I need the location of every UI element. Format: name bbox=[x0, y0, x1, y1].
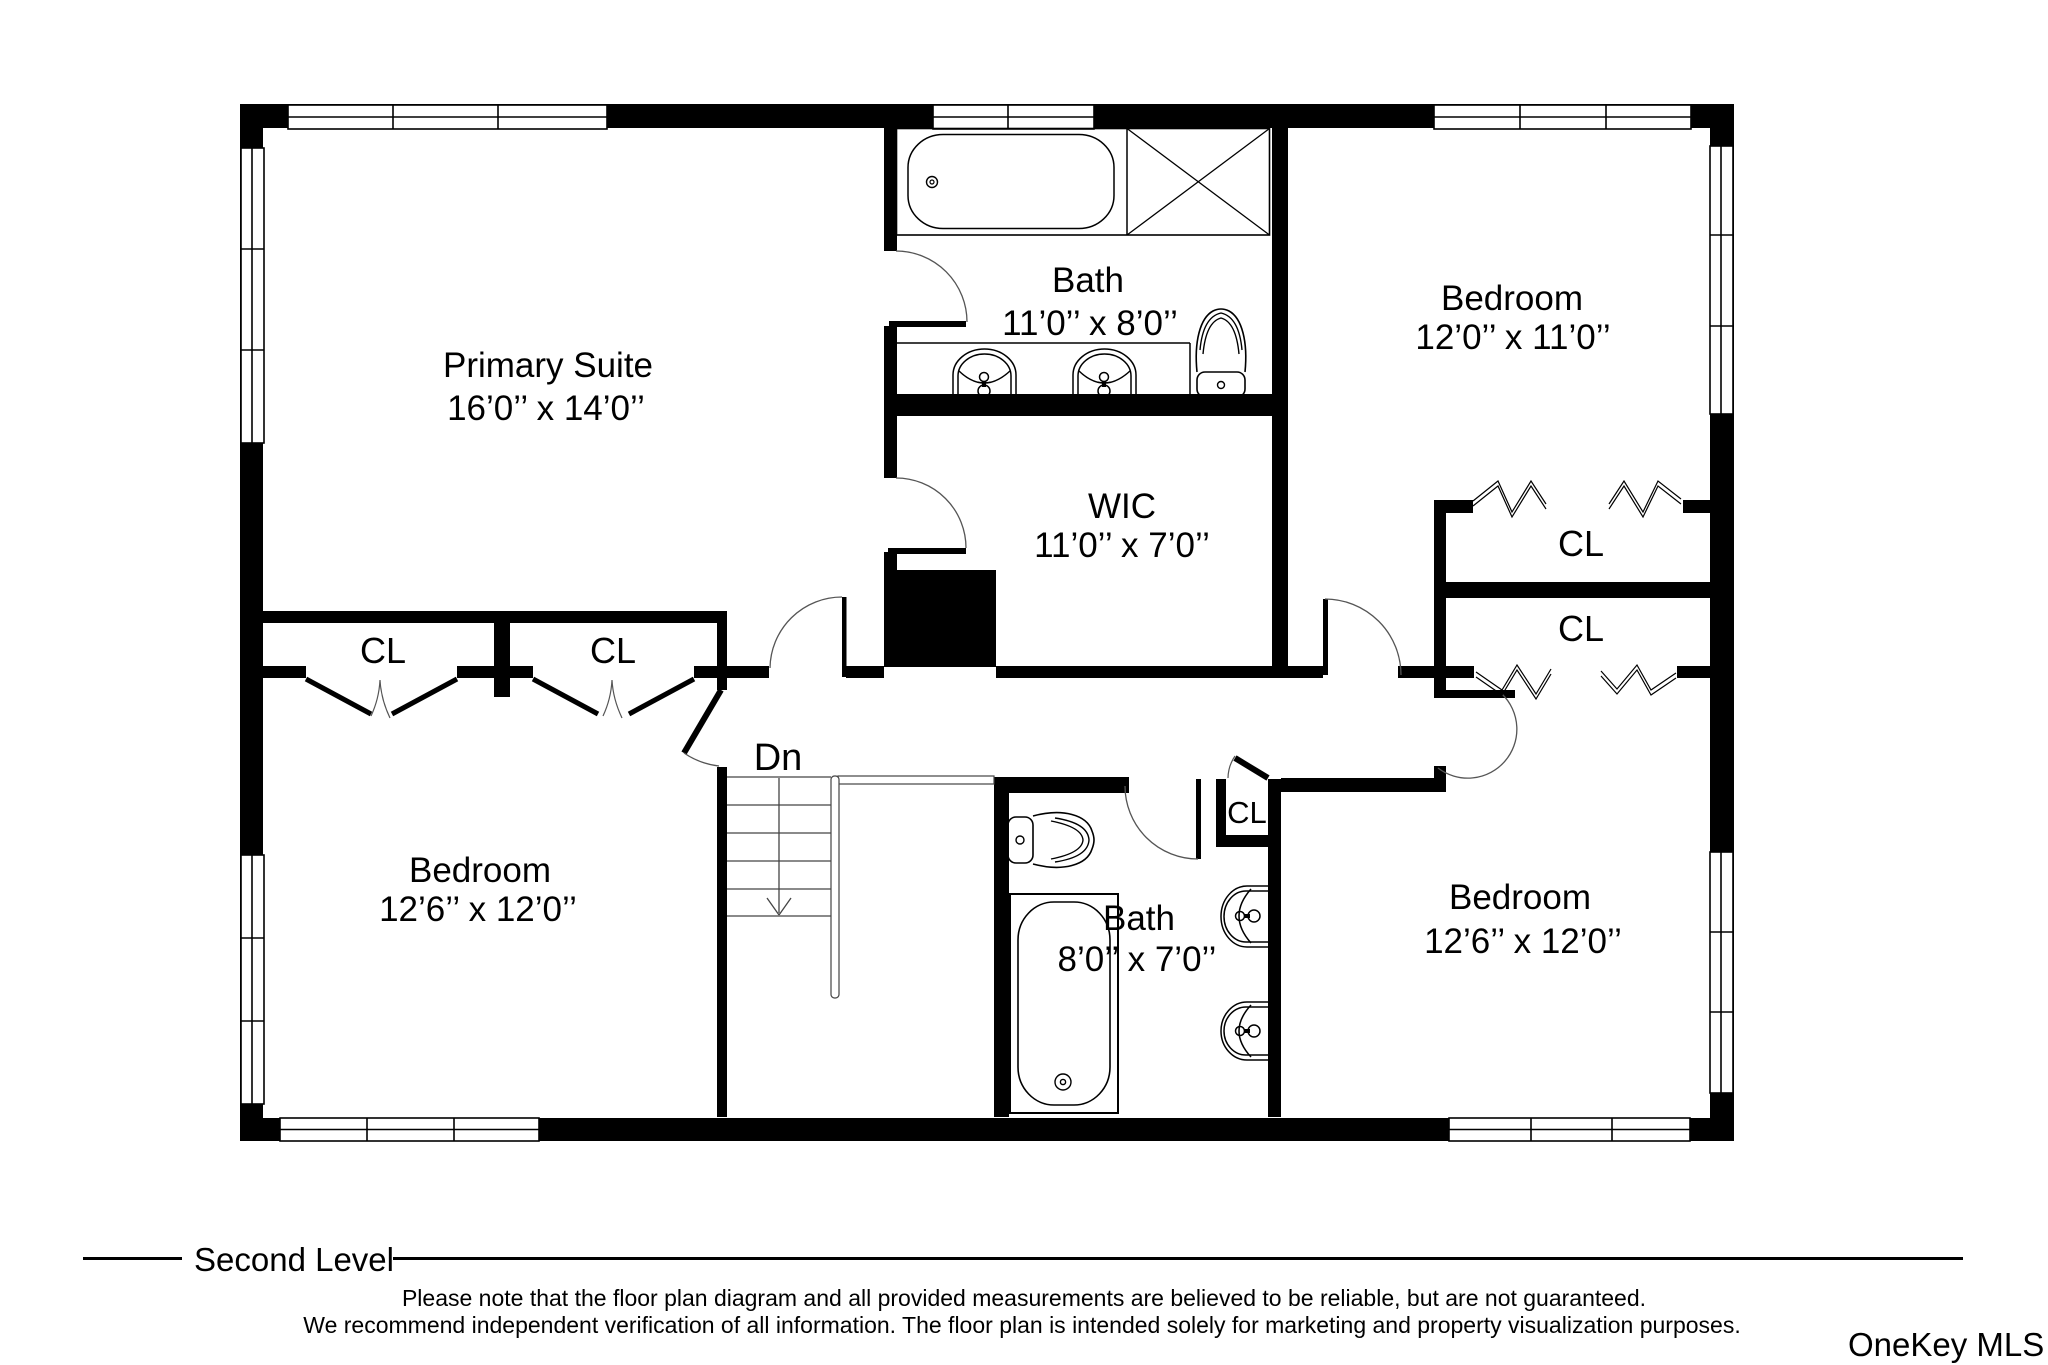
svg-text:11’0’’ x 7’0’’: 11’0’’ x 7’0’’ bbox=[1034, 526, 1210, 565]
svg-text:Bedroom: Bedroom bbox=[1441, 279, 1583, 318]
svg-text:12’6’’ x 12’0’’: 12’6’’ x 12’0’’ bbox=[1424, 922, 1622, 961]
svg-text:Bedroom: Bedroom bbox=[409, 851, 551, 890]
svg-text:We recommend independent verif: We recommend independent verification of… bbox=[303, 1312, 1740, 1338]
svg-text:CL: CL bbox=[360, 630, 406, 671]
svg-text:16’0’’ x 14’0’’: 16’0’’ x 14’0’’ bbox=[447, 389, 645, 428]
svg-text:Please note that the floor pla: Please note that the floor plan diagram … bbox=[402, 1285, 1646, 1311]
svg-text:Bath: Bath bbox=[1103, 899, 1175, 938]
svg-text:Bath: Bath bbox=[1052, 261, 1124, 300]
svg-text:Primary Suite: Primary Suite bbox=[443, 346, 653, 385]
svg-text:Dn: Dn bbox=[754, 737, 803, 779]
svg-text:WIC: WIC bbox=[1088, 487, 1156, 526]
svg-text:OneKey MLS: OneKey MLS bbox=[1848, 1326, 2044, 1363]
svg-text:CL: CL bbox=[1558, 523, 1604, 564]
svg-text:CL: CL bbox=[1558, 608, 1604, 649]
svg-text:CL: CL bbox=[590, 630, 636, 671]
svg-text:CL: CL bbox=[1227, 795, 1267, 830]
svg-text:12’6’’ x 12’0’’: 12’6’’ x 12’0’’ bbox=[379, 890, 577, 929]
svg-text:12’0’’ x 11’0’’: 12’0’’ x 11’0’’ bbox=[1415, 318, 1610, 357]
svg-text:8’0’’ x 7’0’’: 8’0’’ x 7’0’’ bbox=[1058, 940, 1217, 979]
svg-text:Second Level: Second Level bbox=[194, 1241, 394, 1278]
svg-text:Bedroom: Bedroom bbox=[1449, 878, 1591, 917]
svg-text:11’0’’ x 8’0’’: 11’0’’ x 8’0’’ bbox=[1002, 304, 1178, 343]
